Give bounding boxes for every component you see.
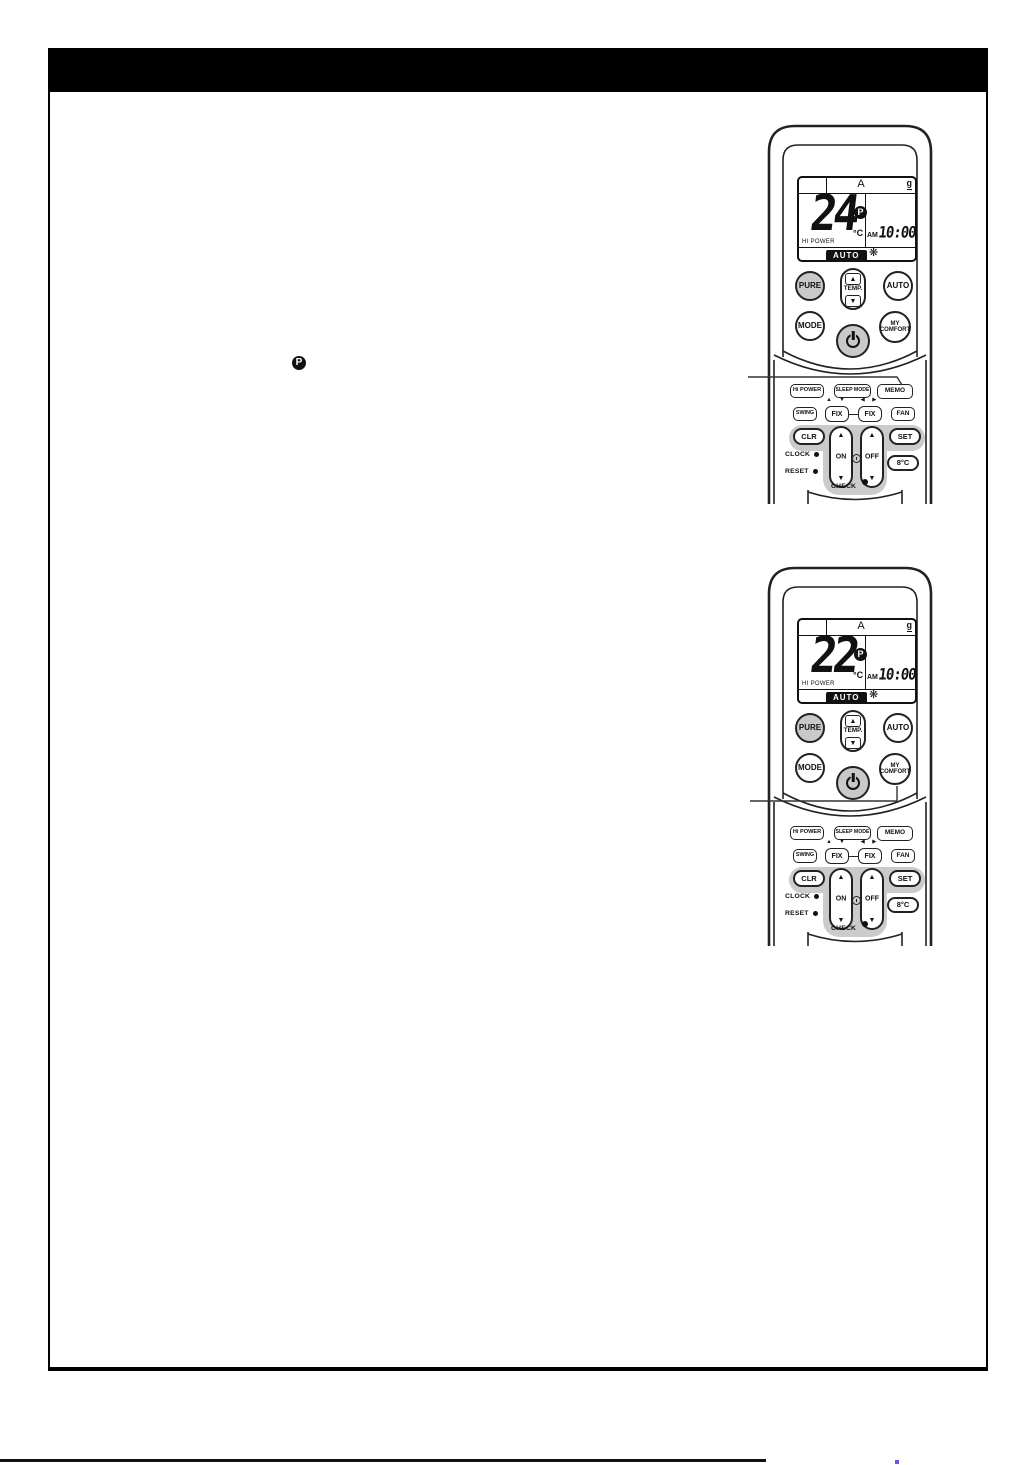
memo-button-label: MEMO bbox=[885, 830, 905, 837]
power-icon bbox=[846, 776, 860, 790]
off-label: OFF bbox=[862, 454, 882, 461]
temp-rocker: ▲ TEMP. ▼ bbox=[840, 268, 866, 310]
hi-power-button-label: Hi POWER bbox=[793, 388, 821, 394]
reset-led bbox=[813, 911, 818, 916]
fix-vertical-button: FIX bbox=[825, 848, 849, 864]
reset-label: RESET bbox=[785, 911, 809, 918]
set-button: SET bbox=[889, 428, 921, 445]
clr-button: CLR bbox=[793, 428, 825, 445]
fan-button-label: FAN bbox=[897, 853, 910, 860]
celsius-label: °C bbox=[853, 229, 863, 238]
reset-led bbox=[813, 469, 818, 474]
footer-rule bbox=[0, 1459, 766, 1462]
temp-rocker: ▲ TEMP. ▼ bbox=[840, 710, 866, 752]
clr-button-label: CLR bbox=[801, 433, 816, 441]
off-up-icon: ▲ bbox=[862, 874, 882, 881]
hi-power-button-label: Hi POWER bbox=[793, 830, 821, 836]
mode-button: MODE bbox=[795, 311, 825, 341]
timer-on-rocker: ▲ ON ▼ bbox=[829, 868, 853, 930]
set-button: SET bbox=[889, 870, 921, 887]
clock-led bbox=[814, 894, 819, 899]
memo-button: MEMO bbox=[877, 384, 913, 399]
sleep-mode-button-label: SLEEP MODE bbox=[836, 830, 870, 835]
my-comfort-label-2: COMFORT bbox=[880, 769, 910, 775]
clock-label: CLOCK bbox=[785, 894, 810, 901]
my-comfort-label-2: COMFORT bbox=[880, 327, 910, 333]
fix-horizontal-arrows-icon: ◀ ▶ bbox=[858, 840, 882, 846]
remote-illustration-my-comfort: A g 22 P °C HI POWER AM 10:00 AUTO ❋ PUR… bbox=[763, 564, 935, 946]
auto-mode-badge: AUTO bbox=[826, 692, 867, 704]
on-down-icon: ▼ bbox=[831, 917, 851, 924]
fan-speed-icon: ❋ bbox=[869, 690, 878, 701]
hi-power-button: Hi POWER bbox=[790, 826, 824, 840]
temp-down-icon: ▼ bbox=[845, 295, 861, 307]
fan-button: FAN bbox=[891, 849, 915, 863]
eight-degrees-button-label: 8°C bbox=[897, 459, 910, 467]
hi-power-indicator: HI POWER bbox=[802, 239, 835, 245]
check-led bbox=[862, 479, 868, 485]
clock-led bbox=[814, 452, 819, 457]
power-icon bbox=[846, 334, 860, 348]
check-label: CHECK bbox=[831, 926, 856, 933]
swing-button: SWING bbox=[793, 849, 817, 863]
hi-power-button: Hi POWER bbox=[790, 384, 824, 398]
timer-clock-icon bbox=[852, 896, 861, 905]
on-down-icon: ▼ bbox=[831, 475, 851, 482]
clock-label: CLOCK bbox=[785, 452, 810, 459]
on-up-icon: ▲ bbox=[831, 874, 851, 881]
on-label: ON bbox=[831, 454, 851, 461]
fan-button-label: FAN bbox=[897, 411, 910, 418]
preset-indicator-icon: P bbox=[854, 648, 867, 661]
remote-illustration-memo: A g 24 P °C HI POWER AM 10:00 AUTO ❋ PUR… bbox=[763, 122, 935, 504]
preset-indicator-icon: P bbox=[854, 206, 867, 219]
check-led bbox=[862, 921, 868, 927]
swing-button-label: SWING bbox=[796, 411, 814, 416]
eight-degrees-button: 8°C bbox=[887, 897, 919, 913]
on-up-icon: ▲ bbox=[831, 432, 851, 439]
celsius-label: °C bbox=[853, 671, 863, 680]
fan-speed-icon: ❋ bbox=[869, 248, 878, 259]
auto-button-label: AUTO bbox=[887, 724, 910, 732]
fix-buttons-connector bbox=[849, 414, 858, 415]
fan-button: FAN bbox=[891, 407, 915, 421]
hi-power-indicator: HI POWER bbox=[802, 681, 835, 687]
timer-on-rocker: ▲ ON ▼ bbox=[829, 426, 853, 488]
fix-horizontal-button: FIX bbox=[858, 406, 882, 422]
eight-degrees-button-label: 8°C bbox=[897, 901, 910, 909]
footer-artifact-dot bbox=[895, 1460, 899, 1464]
my-comfort-button: MY COMFORT bbox=[879, 311, 911, 343]
auto-button-label: AUTO bbox=[887, 282, 910, 290]
swing-button: SWING bbox=[793, 407, 817, 421]
pure-button-label: PURE bbox=[799, 282, 821, 290]
fix-button-label: FIX bbox=[865, 411, 876, 418]
temp-down-icon: ▼ bbox=[845, 737, 861, 749]
clock-value: 10:00 bbox=[875, 225, 919, 241]
sleep-mode-button: SLEEP MODE bbox=[834, 384, 871, 398]
pure-button: PURE bbox=[795, 713, 825, 743]
clock-value: 10:00 bbox=[875, 667, 919, 683]
auto-mode-badge: AUTO bbox=[826, 250, 867, 262]
check-label: CHECK bbox=[831, 484, 856, 491]
fix-button-label: FIX bbox=[832, 853, 843, 860]
on-label: ON bbox=[831, 896, 851, 903]
timer-clock-icon bbox=[852, 454, 861, 463]
fix-buttons-connector bbox=[849, 856, 858, 857]
fix-horizontal-arrows-icon: ◀ ▶ bbox=[858, 398, 882, 404]
mode-button-label: MODE bbox=[798, 322, 822, 330]
memo-button: MEMO bbox=[877, 826, 913, 841]
reset-label: RESET bbox=[785, 469, 809, 476]
sleep-mode-button: SLEEP MODE bbox=[834, 826, 871, 840]
eight-degrees-button: 8°C bbox=[887, 455, 919, 471]
auto-button: AUTO bbox=[883, 713, 913, 743]
fix-vertical-arrows-icon: ▲ ▼ bbox=[825, 840, 849, 846]
fix-vertical-arrows-icon: ▲ ▼ bbox=[825, 398, 849, 404]
my-comfort-button: MY COMFORT bbox=[879, 753, 911, 785]
display-mid-divider bbox=[799, 247, 915, 248]
temp-up-icon: ▲ bbox=[845, 715, 861, 727]
temp-label: TEMP. bbox=[842, 728, 864, 734]
set-button-label: SET bbox=[898, 433, 913, 441]
auto-button: AUTO bbox=[883, 271, 913, 301]
temp-label: TEMP. bbox=[842, 286, 864, 292]
memo-button-label: MEMO bbox=[885, 388, 905, 395]
preset-p-icon: P bbox=[292, 356, 306, 370]
fix-vertical-button: FIX bbox=[825, 406, 849, 422]
display-mid-divider bbox=[799, 689, 915, 690]
display-main-divider bbox=[865, 193, 866, 247]
power-button bbox=[836, 324, 870, 358]
fix-button-label: FIX bbox=[865, 853, 876, 860]
lcd-display: A g 22 P °C HI POWER AM 10:00 AUTO ❋ bbox=[797, 618, 917, 704]
clr-button: CLR bbox=[793, 870, 825, 887]
power-button bbox=[836, 766, 870, 800]
mode-button-label: MODE bbox=[798, 764, 822, 772]
pure-button-label: PURE bbox=[799, 724, 821, 732]
swing-button-label: SWING bbox=[796, 853, 814, 858]
mode-button: MODE bbox=[795, 753, 825, 783]
fix-horizontal-button: FIX bbox=[858, 848, 882, 864]
clr-button-label: CLR bbox=[801, 875, 816, 883]
lcd-display: A g 24 P °C HI POWER AM 10:00 AUTO ❋ bbox=[797, 176, 917, 262]
fix-button-label: FIX bbox=[832, 411, 843, 418]
sleep-mode-button-label: SLEEP MODE bbox=[836, 388, 870, 393]
signal-icon: g bbox=[907, 621, 913, 632]
off-up-icon: ▲ bbox=[862, 432, 882, 439]
pure-button: PURE bbox=[795, 271, 825, 301]
set-button-label: SET bbox=[898, 875, 913, 883]
display-main-divider bbox=[865, 635, 866, 689]
off-label: OFF bbox=[862, 896, 882, 903]
signal-icon: g bbox=[907, 179, 913, 190]
temp-up-icon: ▲ bbox=[845, 273, 861, 285]
